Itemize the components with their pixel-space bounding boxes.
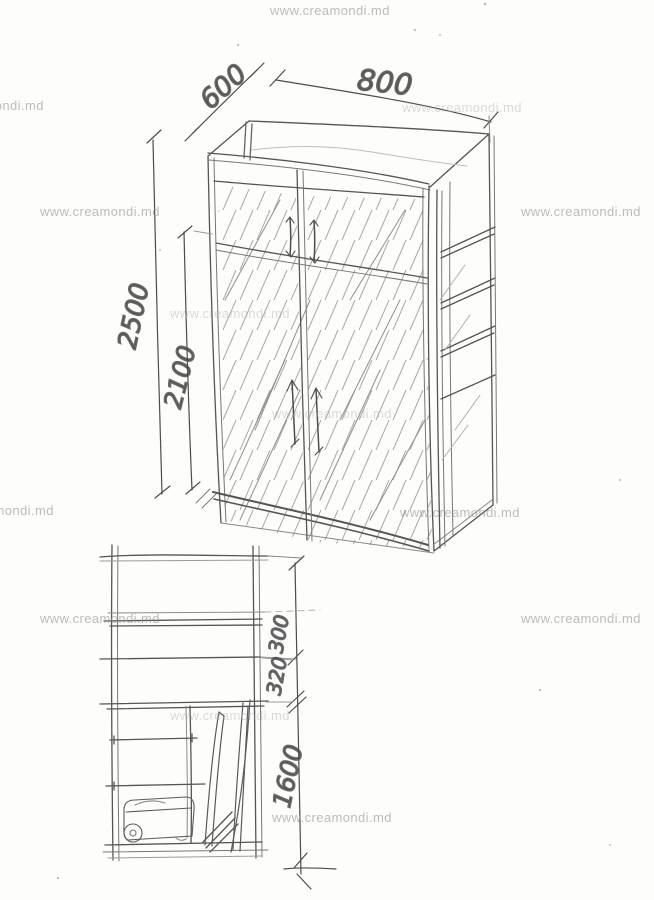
watermark: www.creamondi.md — [402, 100, 522, 115]
section-lower-compartment — [106, 706, 205, 843]
dim-section-bottom-label: 1600 — [267, 742, 309, 810]
dim-total-height-label: 2500 — [113, 281, 156, 352]
dim-width-label: 800 — [356, 62, 415, 102]
watermark: www.creamondi.md — [521, 611, 641, 626]
watermark: www.creamondi.md — [270, 3, 390, 18]
dim-section-top-label: 300 — [264, 613, 294, 655]
dim-section-middle-label: 320 — [262, 655, 292, 697]
door-handles-top — [286, 217, 319, 263]
watermark: www.creamondi.md — [0, 503, 54, 518]
watermark: www.creamondi.md — [40, 611, 160, 626]
dim-door-height-label: 2100 — [158, 343, 202, 412]
side-shelf-unit — [433, 134, 497, 551]
watermark: www.creamondi.md — [272, 406, 392, 421]
watermark: www.creamondi.md — [40, 204, 160, 219]
dimension-total-height — [147, 130, 170, 498]
door-mirror-hatching — [218, 185, 432, 548]
watermark: www.creamondi.md — [170, 306, 290, 321]
scanned-sketch-page: 600 800 2500 2100 — [0, 0, 654, 900]
dim-depth-label: 600 — [194, 58, 253, 116]
watermark: www.creamondi.md — [0, 98, 44, 113]
watermark: www.creamondi.md — [521, 204, 641, 219]
watermark: www.creamondi.md — [170, 708, 290, 723]
watermark: www.creamondi.md — [272, 810, 392, 825]
watermark: www.creamondi.md — [400, 505, 520, 520]
wardrobe-top-face — [208, 121, 489, 190]
sketch-canvas: 600 800 2500 2100 — [0, 0, 654, 900]
vacuum-cleaner — [124, 797, 194, 842]
